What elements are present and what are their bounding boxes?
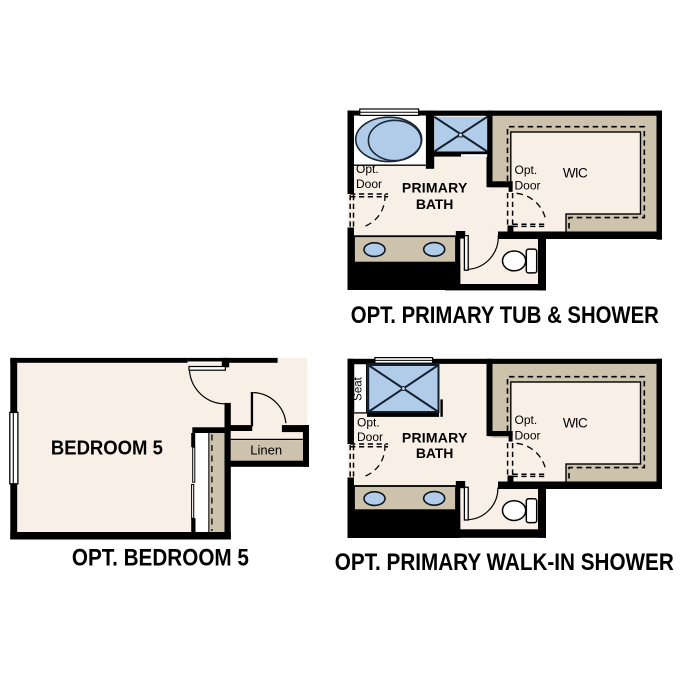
svg-text:PRIMARY: PRIMARY — [402, 180, 468, 196]
svg-text:Opt.: Opt. — [515, 413, 538, 427]
svg-text:Door: Door — [515, 179, 541, 193]
svg-text:Opt.: Opt. — [356, 162, 379, 176]
svg-text:Seat: Seat — [353, 376, 365, 400]
svg-text:Door: Door — [515, 429, 541, 443]
svg-text:BEDROOM 5: BEDROOM 5 — [51, 437, 163, 459]
svg-text:PRIMARY: PRIMARY — [402, 429, 468, 445]
svg-text:Door: Door — [356, 177, 382, 191]
svg-text:Opt.: Opt. — [515, 163, 538, 177]
svg-text:Linen: Linen — [250, 442, 282, 457]
svg-text:OPT. PRIMARY WALK-IN SHOWER: OPT. PRIMARY WALK-IN SHOWER — [335, 549, 674, 576]
svg-text:OPT. PRIMARY TUB & SHOWER: OPT. PRIMARY TUB & SHOWER — [351, 302, 659, 329]
svg-text:BATH: BATH — [416, 196, 454, 212]
svg-text:OPT. BEDROOM 5: OPT. BEDROOM 5 — [72, 545, 249, 572]
svg-text:Opt.: Opt. — [357, 416, 380, 430]
svg-text:WIC: WIC — [563, 166, 588, 181]
svg-text:WIC: WIC — [563, 416, 588, 431]
svg-text:BATH: BATH — [416, 445, 454, 461]
svg-text:Door: Door — [357, 430, 383, 444]
